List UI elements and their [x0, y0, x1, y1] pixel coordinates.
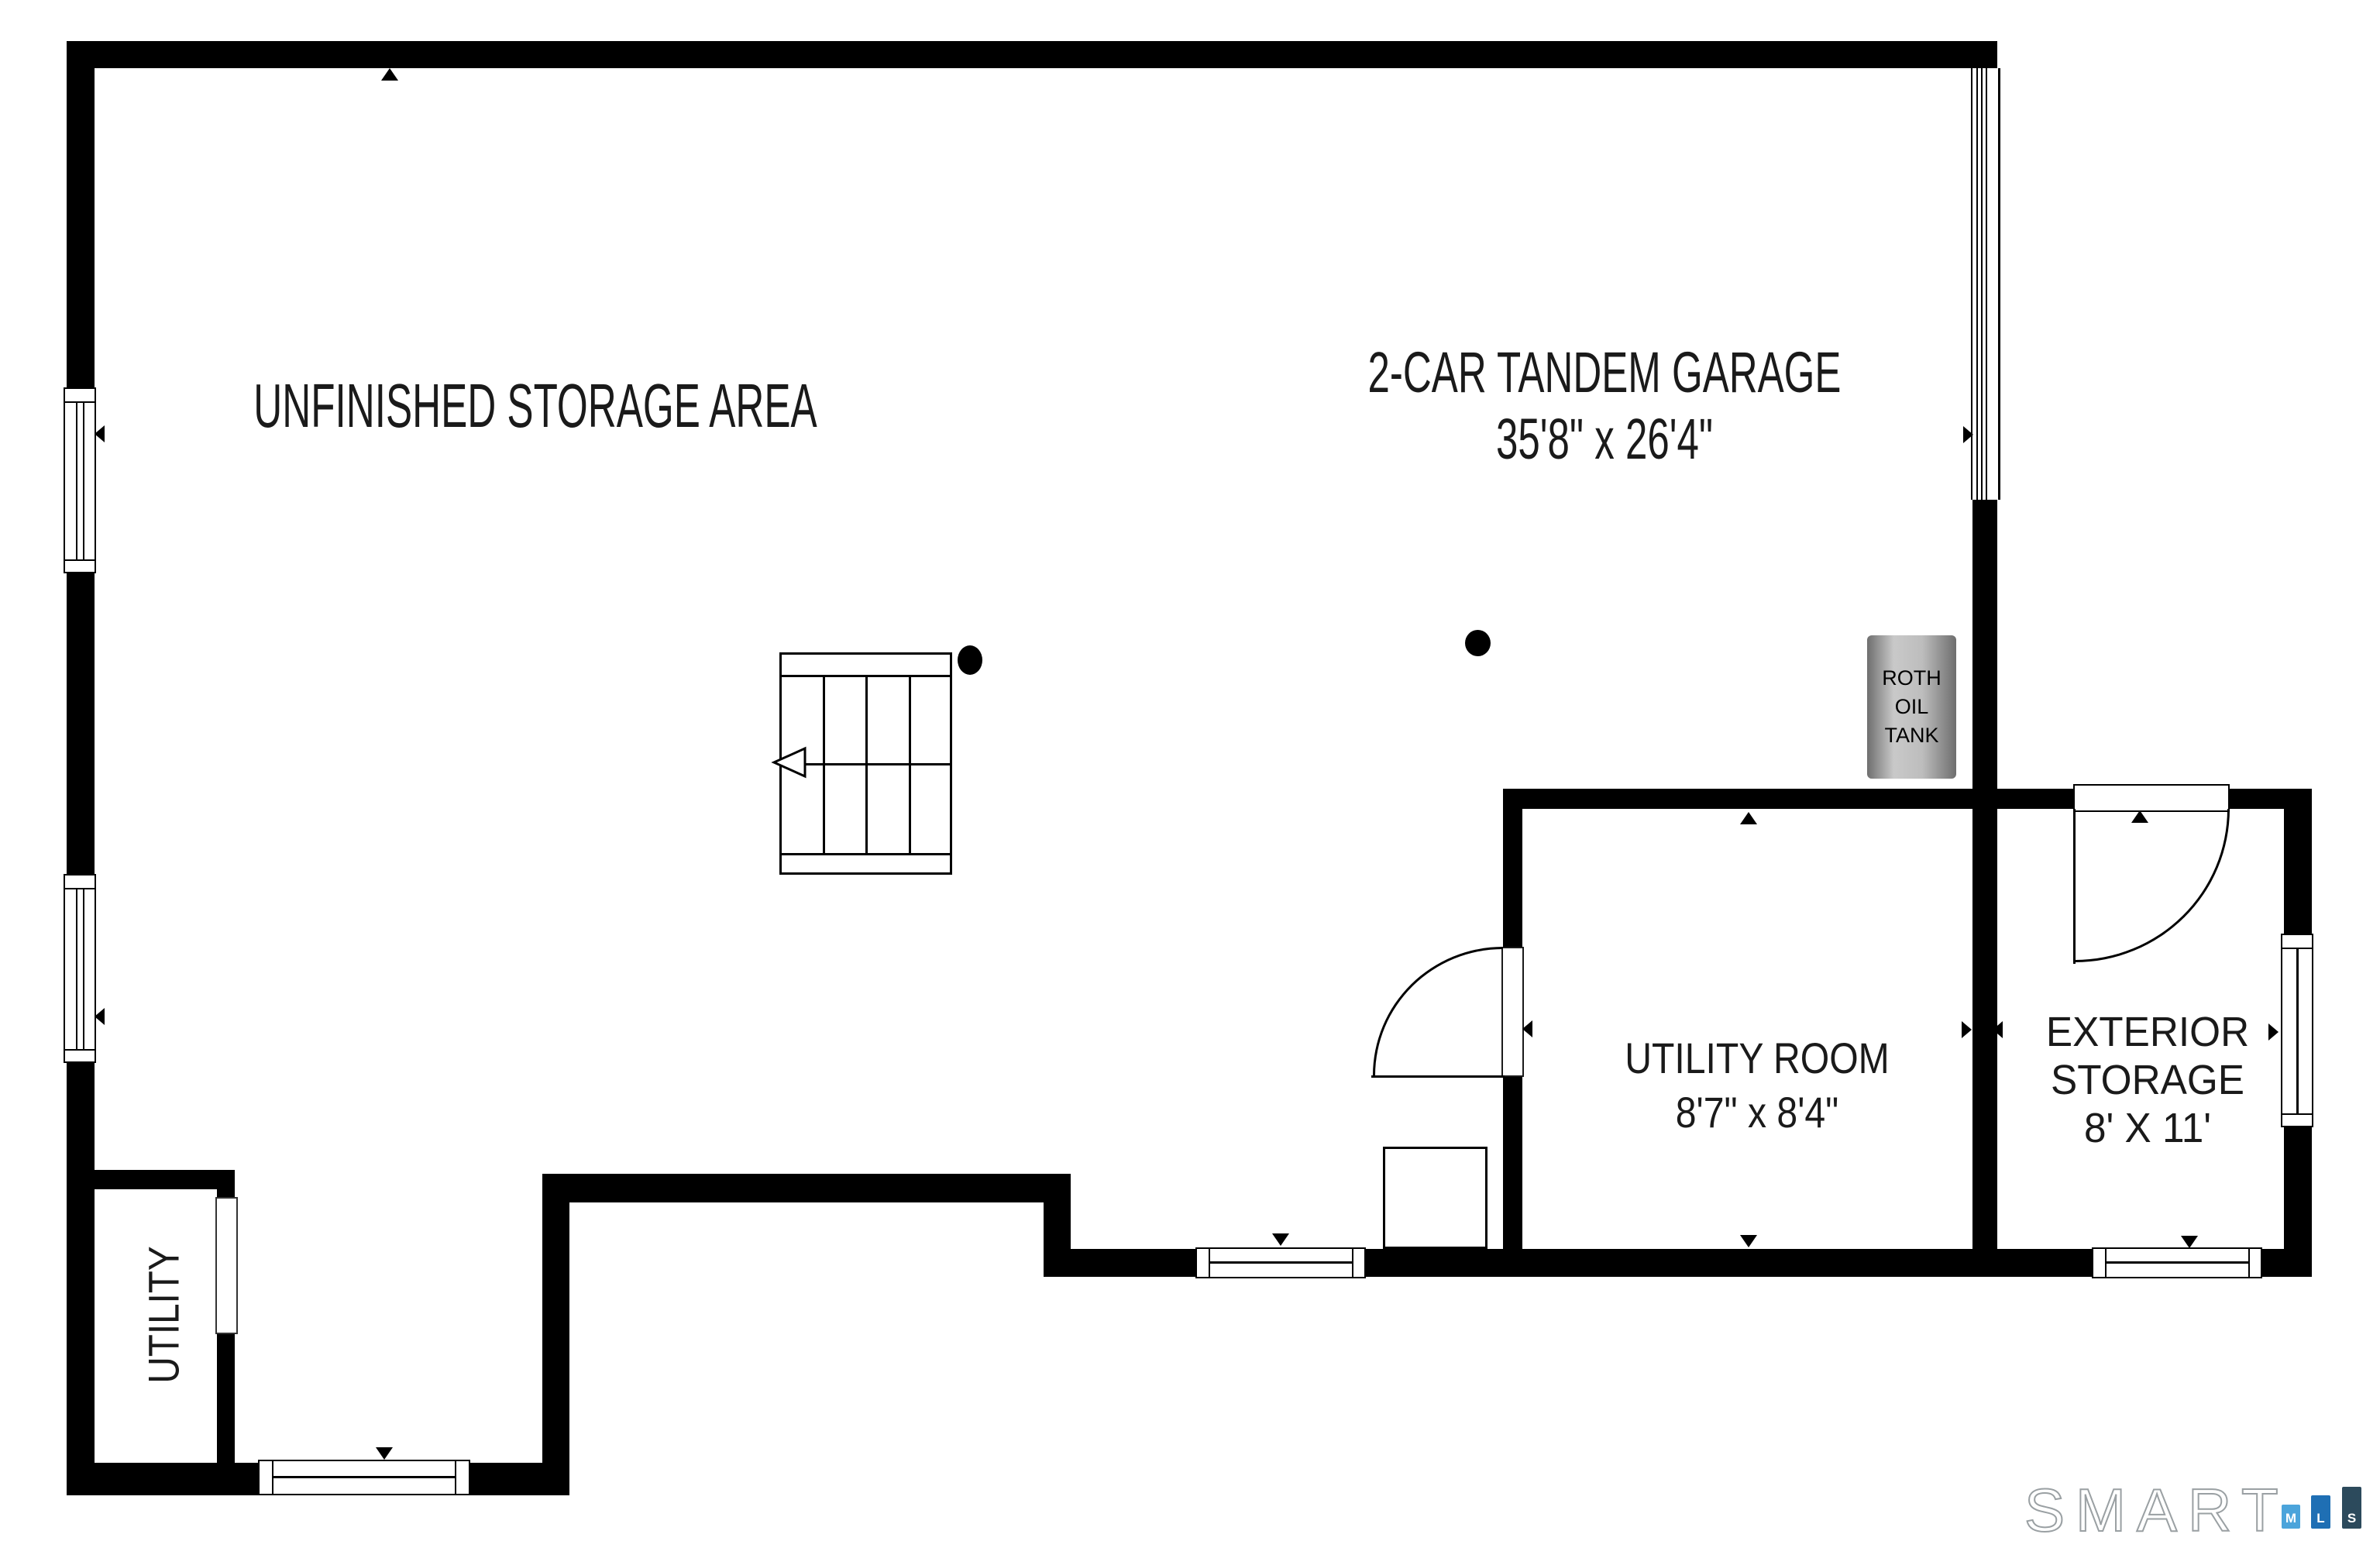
oil-tank: ROTH OIL TANK — [1867, 635, 1956, 779]
wall-bottomleft-b — [470, 1463, 569, 1495]
storage-door-leaf — [2073, 809, 2076, 964]
window-left-2 — [64, 874, 96, 1063]
stairs-direction-line — [782, 763, 950, 765]
storage-door-opening — [2073, 784, 2230, 812]
marker-divider-left-icon — [1962, 1021, 1972, 1038]
window-glass-line — [83, 403, 84, 559]
closet-door-opening — [215, 1197, 238, 1334]
smartmls-logo-text: SMART — [2024, 1480, 2289, 1540]
oil-tank-label-line3: TANK — [1884, 721, 1938, 750]
wall-bottom-b — [1366, 1249, 2092, 1277]
garage-door-track — [1986, 68, 1987, 500]
window-glass-line — [2107, 1261, 2248, 1264]
garage-label: 2-CAR TANDEM GARAGE — [1368, 339, 1842, 406]
wall-closet-right-lower — [217, 1334, 235, 1463]
marker-divider-right-icon — [1993, 1021, 2003, 1038]
utility-door-leaf — [1371, 1075, 1505, 1078]
wall-left-middle — [67, 573, 95, 874]
mls-badge-s: S — [2342, 1487, 2361, 1529]
mls-badge-l-letter: L — [2316, 1511, 2324, 1526]
window-glass-line — [76, 889, 77, 1049]
oil-tank-label-line1: ROTH — [1882, 664, 1941, 693]
utility-room-label: UTILITY ROOM — [1625, 1031, 1890, 1085]
garage-label-block: 2-CAR TANDEM GARAGE 35'8" x 26'4" — [1368, 339, 1842, 473]
wall-utility-left-upper — [1503, 809, 1522, 947]
exterior-storage-label-block: EXTERIOR STORAGE 8' X 11' — [2046, 1008, 2249, 1152]
wall-middle-bottom — [542, 1174, 1071, 1202]
marker-window-left-1-icon — [95, 425, 105, 442]
window-cap — [2282, 1113, 2312, 1115]
mls-badge-m: M — [2282, 1505, 2300, 1529]
window-cap — [1352, 1249, 1353, 1277]
window-glass-line — [273, 1476, 455, 1478]
marker-garage-door-icon — [1963, 426, 1973, 443]
wall-utility-left-lower — [1503, 1077, 1522, 1249]
storage-door-swing-arc — [2075, 809, 2230, 962]
exterior-storage-label-line1: EXTERIOR — [2046, 1008, 2249, 1056]
exterior-storage-label-line2: STORAGE — [2046, 1056, 2249, 1104]
window-glass-line — [1210, 1261, 1352, 1264]
wall-closet-top — [95, 1170, 235, 1189]
window-glass-line — [76, 403, 77, 559]
mls-badge-m-letter: M — [2285, 1511, 2296, 1526]
wall-left-connector — [542, 1174, 569, 1495]
window-cap — [65, 888, 95, 889]
column-dot-stairs — [958, 645, 982, 675]
wall-bottomleft-a — [67, 1463, 258, 1495]
utility-door-opening — [1501, 947, 1524, 1077]
marker-top-wall-icon — [381, 68, 398, 81]
marker-utility-room-top-icon — [1740, 812, 1757, 824]
wall-top — [67, 41, 1997, 68]
marker-window-left-2-icon — [95, 1008, 105, 1025]
wall-step-connector — [1044, 1202, 1071, 1277]
oil-tank-label-line2: OIL — [1895, 693, 1929, 721]
window-left-1 — [64, 387, 96, 573]
garage-dimensions: 35'8" x 26'4" — [1368, 406, 1842, 473]
mls-badge-l: L — [2311, 1495, 2330, 1529]
marker-storage-bottom-icon — [2181, 1236, 2198, 1248]
window-glass-line — [2296, 949, 2299, 1113]
wall-left-upper — [67, 68, 95, 387]
window-storage-bottom — [2092, 1247, 2262, 1278]
marker-nook-window-icon — [376, 1447, 393, 1460]
window-cap — [65, 401, 95, 403]
marker-utility-door-icon — [1522, 1020, 1532, 1037]
marker-storage-entry-icon — [2131, 810, 2148, 823]
window-glass-line — [83, 889, 84, 1049]
utility-closet-label: UTILITY — [139, 1246, 189, 1383]
window-cap — [65, 1049, 95, 1051]
garage-door-track — [1981, 68, 1983, 500]
window-bottom-middle — [1195, 1247, 1366, 1278]
wall-bottom-c — [2262, 1249, 2312, 1277]
mls-badge-s-letter: S — [2347, 1511, 2356, 1526]
marker-utility-room-bottom-icon — [1740, 1235, 1757, 1247]
garage-door-track — [1976, 68, 1978, 500]
exterior-storage-dimensions: 8' X 11' — [2046, 1104, 2249, 1152]
wall-left-lower — [67, 1063, 95, 1495]
wall-right-main — [1972, 500, 1997, 1277]
marker-middle-window-icon — [1272, 1233, 1289, 1246]
window-cap — [2248, 1249, 2250, 1277]
stairs-landing-line — [782, 853, 950, 855]
marker-storage-window-icon — [2268, 1023, 2279, 1041]
window-cap — [455, 1461, 456, 1494]
window-storage-right — [2281, 934, 2313, 1127]
equipment-box — [1383, 1147, 1487, 1249]
column-dot-garage — [1465, 630, 1491, 656]
floor-plan: ROTH OIL TANK UNFINISHED STORAGE AREA 2-… — [0, 0, 2380, 1548]
wall-storage-right-upper — [2284, 809, 2312, 934]
garage-door — [1971, 68, 2000, 500]
window-cap — [65, 559, 95, 561]
unfinished-storage-label: UNFINISHED STORAGE AREA — [253, 370, 817, 442]
wall-closet-right-upper — [217, 1170, 235, 1197]
utility-room-dimensions: 8'7" x 8'4" — [1625, 1085, 1890, 1140]
utility-door-swing-arc — [1373, 947, 1503, 1075]
window-bottomleft — [258, 1460, 470, 1495]
stairs-direction-arrow — [769, 746, 807, 779]
utility-room-label-block: UTILITY ROOM 8'7" x 8'4" — [1625, 1031, 1890, 1140]
